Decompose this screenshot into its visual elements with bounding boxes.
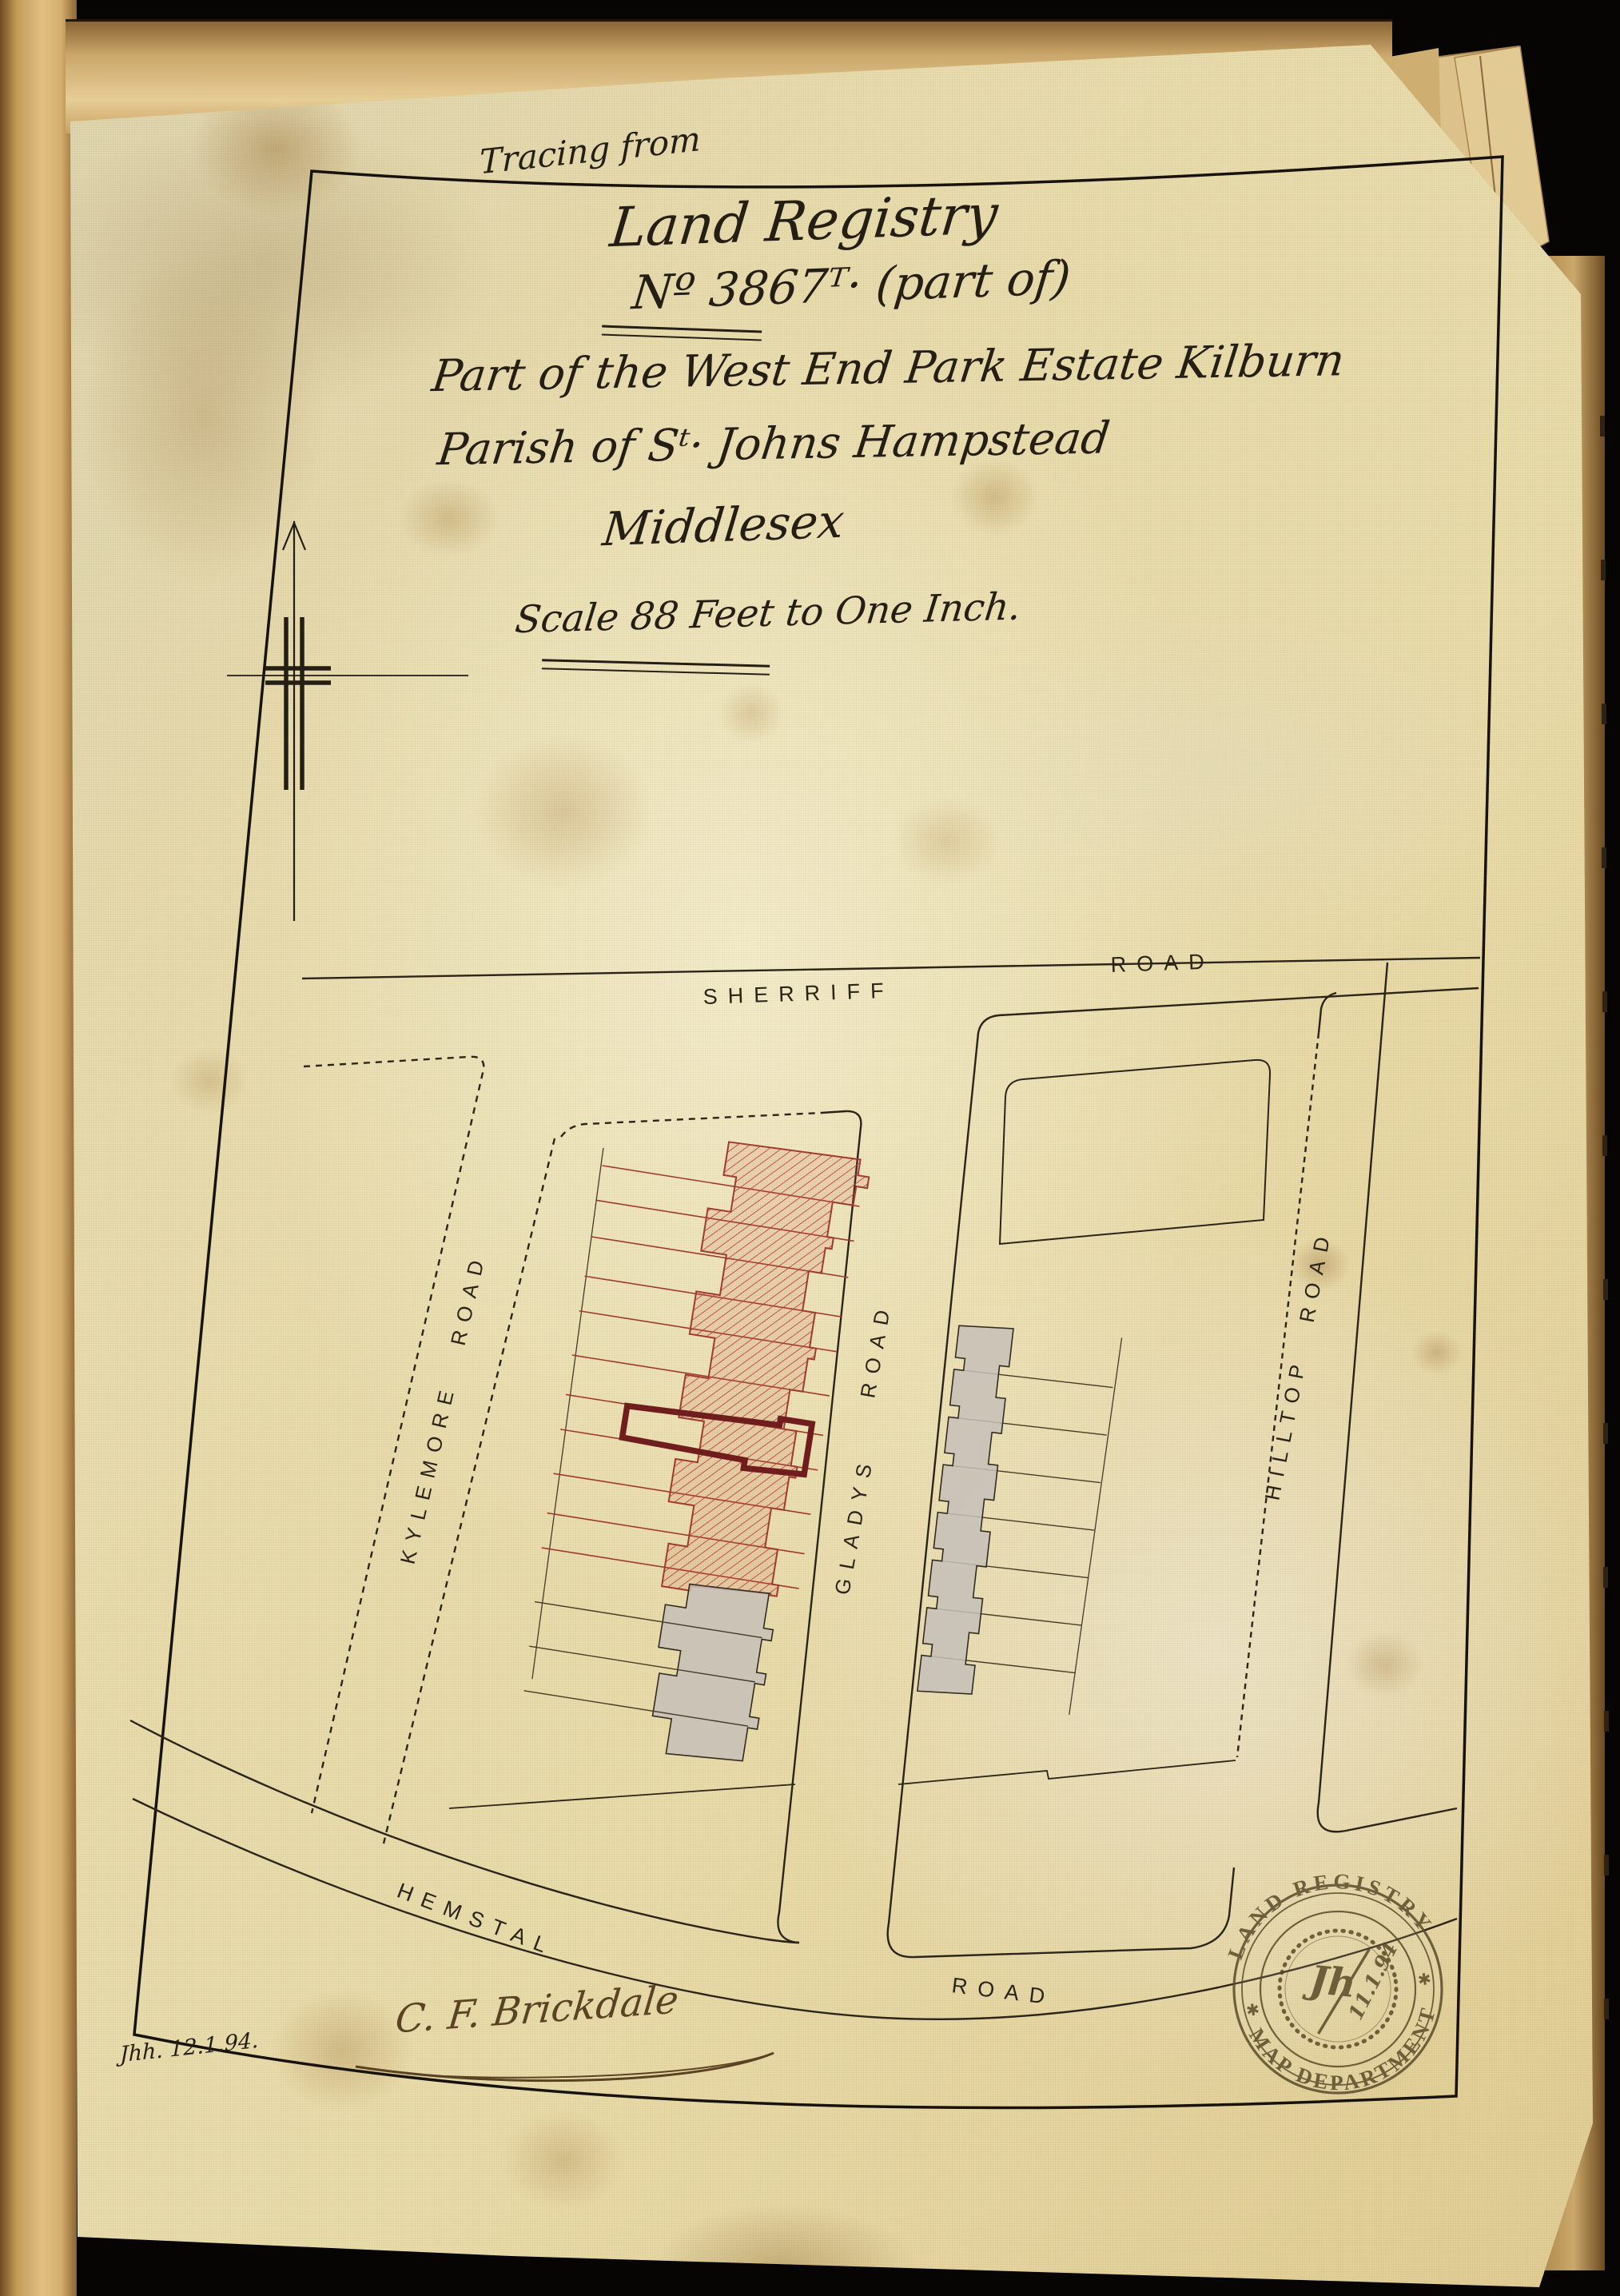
- stamp-star-right: ✱: [1417, 1971, 1433, 1990]
- stamp-star-left: ✱: [1245, 2001, 1261, 2020]
- title-county: Middlesex: [600, 493, 847, 556]
- hilltop-road-east-line: [1318, 963, 1457, 1832]
- label-hilltop-road: HILLTOP ROAD: [1260, 1226, 1335, 1502]
- corner-plot-outline: [1000, 1060, 1270, 1244]
- compass-cross-icon: [265, 617, 331, 790]
- land-registry-stamp: LAND REGISTRY MAP DEPARTMENT ✱ ✱ Jh 11.1…: [1213, 1856, 1460, 2109]
- north-arrow-icon: [227, 521, 468, 921]
- label-gladys-road: ROAD: [855, 1299, 896, 1400]
- east-grey-houses: [917, 1322, 1013, 1697]
- kylemore-west-dashed-line: [304, 1057, 484, 1813]
- label-sherriff-road: ROAD: [1110, 949, 1215, 977]
- hilltop-west-dashed-line: [1237, 1033, 1319, 1757]
- label-sherriff: SHERRIFF: [703, 979, 894, 1009]
- west-garden-back-line: [519, 1148, 616, 1679]
- west-block-south-boundary: [449, 1784, 795, 1808]
- label-hemstal: HEMSTAL: [394, 1879, 559, 1961]
- binding-stitches: [1600, 416, 1609, 2019]
- west-grey-houses: [643, 1578, 778, 1768]
- terrace-east-group: [917, 1319, 1122, 1716]
- photographed-register-page: { "document": { "tracing_from": "Tracing…: [0, 0, 1620, 2296]
- terrace-west-group: [511, 1119, 872, 1771]
- southeast-block-garden-line: [898, 1760, 1236, 1784]
- label-kylemore-road: KYLEMORE ROAD: [396, 1250, 491, 1566]
- label-hemstal-road: ROAD: [950, 1973, 1057, 2010]
- label-gladys: GLADYS: [830, 1453, 878, 1596]
- hilltop-west-corner: [1319, 993, 1336, 1033]
- sherriff-road-north-line: [302, 958, 1480, 979]
- east-garden-back-line: [1069, 1337, 1122, 1716]
- signature-flourish: [356, 2053, 774, 2081]
